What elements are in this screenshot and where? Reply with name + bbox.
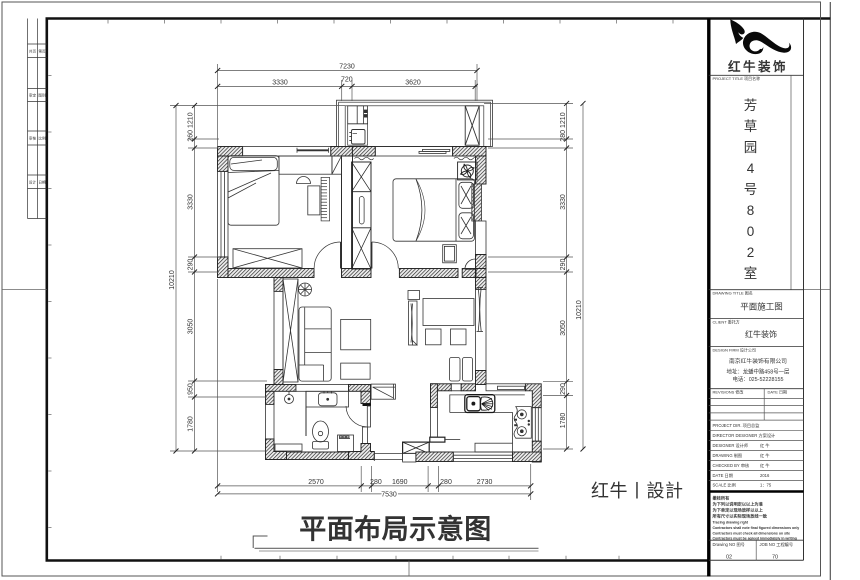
svg-text:7230: 7230	[339, 64, 355, 71]
svg-text:Tracing drawing right: Tracing drawing right	[713, 521, 749, 525]
svg-text:3050: 3050	[188, 319, 195, 335]
svg-text:Contractors shall note final f: Contractors shall note final figured dim…	[713, 526, 800, 530]
svg-text:Contractors must check all dim: Contractors must check all dimensions on…	[713, 532, 791, 536]
svg-text:2730: 2730	[477, 479, 493, 486]
svg-text:设计: 设计	[29, 180, 37, 185]
svg-text:CHECKED BY 审核: CHECKED BY 审核	[713, 462, 751, 469]
svg-text:红 牛: 红 牛	[760, 452, 770, 459]
svg-text:70: 70	[772, 555, 778, 561]
svg-text:PROJECT TITLE 项目名称: PROJECT TITLE 项目名称	[713, 75, 761, 81]
svg-text:280 1210: 280 1210	[560, 112, 567, 141]
svg-text:所有尺寸以实际现场放线一致: 所有尺寸以实际现场放线一致	[713, 513, 768, 520]
svg-text:第页: 第页	[38, 49, 46, 54]
svg-text:3620: 3620	[405, 80, 421, 87]
svg-text:260 1210: 260 1210	[188, 112, 195, 141]
svg-text:280: 280	[370, 479, 382, 486]
svg-text:比例: 比例	[38, 136, 46, 141]
svg-text:地址：龙蟠中路458号一层: 地址：龙蟠中路458号一层	[727, 367, 791, 375]
svg-text:红 牛: 红 牛	[760, 442, 770, 449]
svg-text:Drawing NO 图号: Drawing NO 图号	[713, 542, 745, 548]
svg-text:1690: 1690	[392, 479, 408, 486]
svg-text:红牛装饰: 红牛装饰	[745, 329, 777, 339]
svg-text:1：75: 1：75	[760, 483, 772, 488]
svg-text:2: 2	[747, 245, 755, 260]
svg-text:DRAWING 制图: DRAWING 制图	[713, 452, 743, 459]
svg-text:号: 号	[744, 182, 758, 197]
svg-text:3330: 3330	[560, 194, 567, 210]
svg-text:950: 950	[188, 383, 195, 395]
svg-text:红 牛: 红 牛	[760, 462, 770, 469]
svg-text:REVISIONS 修改: REVISIONS 修改	[713, 389, 744, 395]
svg-text:DESIGNER 设计师: DESIGNER 设计师	[713, 442, 749, 449]
svg-text:室: 室	[744, 265, 758, 281]
svg-text:审定: 审定	[29, 93, 37, 98]
svg-text:DIRECTOR DESIGNER 方案设计: DIRECTOR DESIGNER 方案设计	[713, 432, 776, 439]
svg-text:720: 720	[341, 77, 353, 84]
svg-text:DATE 日期: DATE 日期	[768, 389, 787, 395]
svg-text:图别: 图别	[38, 93, 46, 98]
svg-text:4: 4	[747, 161, 755, 176]
svg-text:1780: 1780	[188, 416, 195, 432]
svg-text:10210: 10210	[576, 300, 583, 320]
svg-text:DATE 日期: DATE 日期	[713, 473, 733, 479]
svg-text:芳: 芳	[744, 98, 758, 113]
svg-text:红牛装饰: 红牛装饰	[728, 59, 788, 74]
svg-text:0: 0	[747, 224, 755, 239]
svg-text:为下单定以现场放样以以上: 为下单定以现场放样以以上	[713, 507, 764, 514]
svg-text:8: 8	[747, 203, 755, 218]
svg-text:JOB NO 工程编号: JOB NO 工程编号	[760, 541, 794, 548]
svg-text:审核: 审核	[29, 136, 37, 141]
svg-text:2016: 2016	[760, 473, 770, 478]
svg-text:290: 290	[560, 259, 567, 271]
svg-text:2570: 2570	[308, 479, 324, 486]
svg-text:共页: 共页	[29, 49, 37, 54]
svg-text:280: 280	[440, 479, 452, 486]
svg-text:290: 290	[560, 383, 567, 395]
svg-text:02: 02	[726, 555, 732, 561]
svg-text:CLIENT 委托方: CLIENT 委托方	[713, 319, 740, 325]
svg-text:3050: 3050	[560, 320, 567, 336]
svg-text:红牛丨設計: 红牛丨設計	[591, 481, 684, 501]
svg-text:园: 园	[744, 140, 758, 155]
svg-text:草: 草	[744, 119, 758, 134]
svg-text:平面施工图: 平面施工图	[740, 302, 783, 312]
svg-text:DRAWING TITLE 图名: DRAWING TITLE 图名	[713, 290, 753, 296]
svg-text:10210: 10210	[169, 270, 176, 290]
svg-text:3330: 3330	[272, 80, 288, 87]
svg-text:SCALE 比例: SCALE 比例	[713, 482, 736, 489]
svg-text:PROJECT DIR. 项目总监: PROJECT DIR. 项目总监	[713, 422, 760, 429]
svg-text:290: 290	[188, 259, 195, 271]
svg-text:7530: 7530	[381, 492, 397, 499]
svg-text:1780: 1780	[560, 413, 567, 429]
svg-text:日期: 日期	[38, 180, 46, 185]
svg-text:南京红牛装饰有限公司: 南京红牛装饰有限公司	[729, 357, 787, 365]
svg-text:3330: 3330	[188, 194, 195, 210]
svg-text:平面布局示意图: 平面布局示意图	[299, 514, 492, 545]
svg-text:为下列以说明定以以上为准: 为下列以说明定以以上为准	[713, 501, 764, 508]
svg-text:DESIGN FIRM 设计公司: DESIGN FIRM 设计公司	[713, 347, 756, 353]
svg-text:电话：025-52228155: 电话：025-52228155	[733, 375, 784, 383]
svg-text:撤枝所有: 撤枝所有	[713, 495, 731, 502]
